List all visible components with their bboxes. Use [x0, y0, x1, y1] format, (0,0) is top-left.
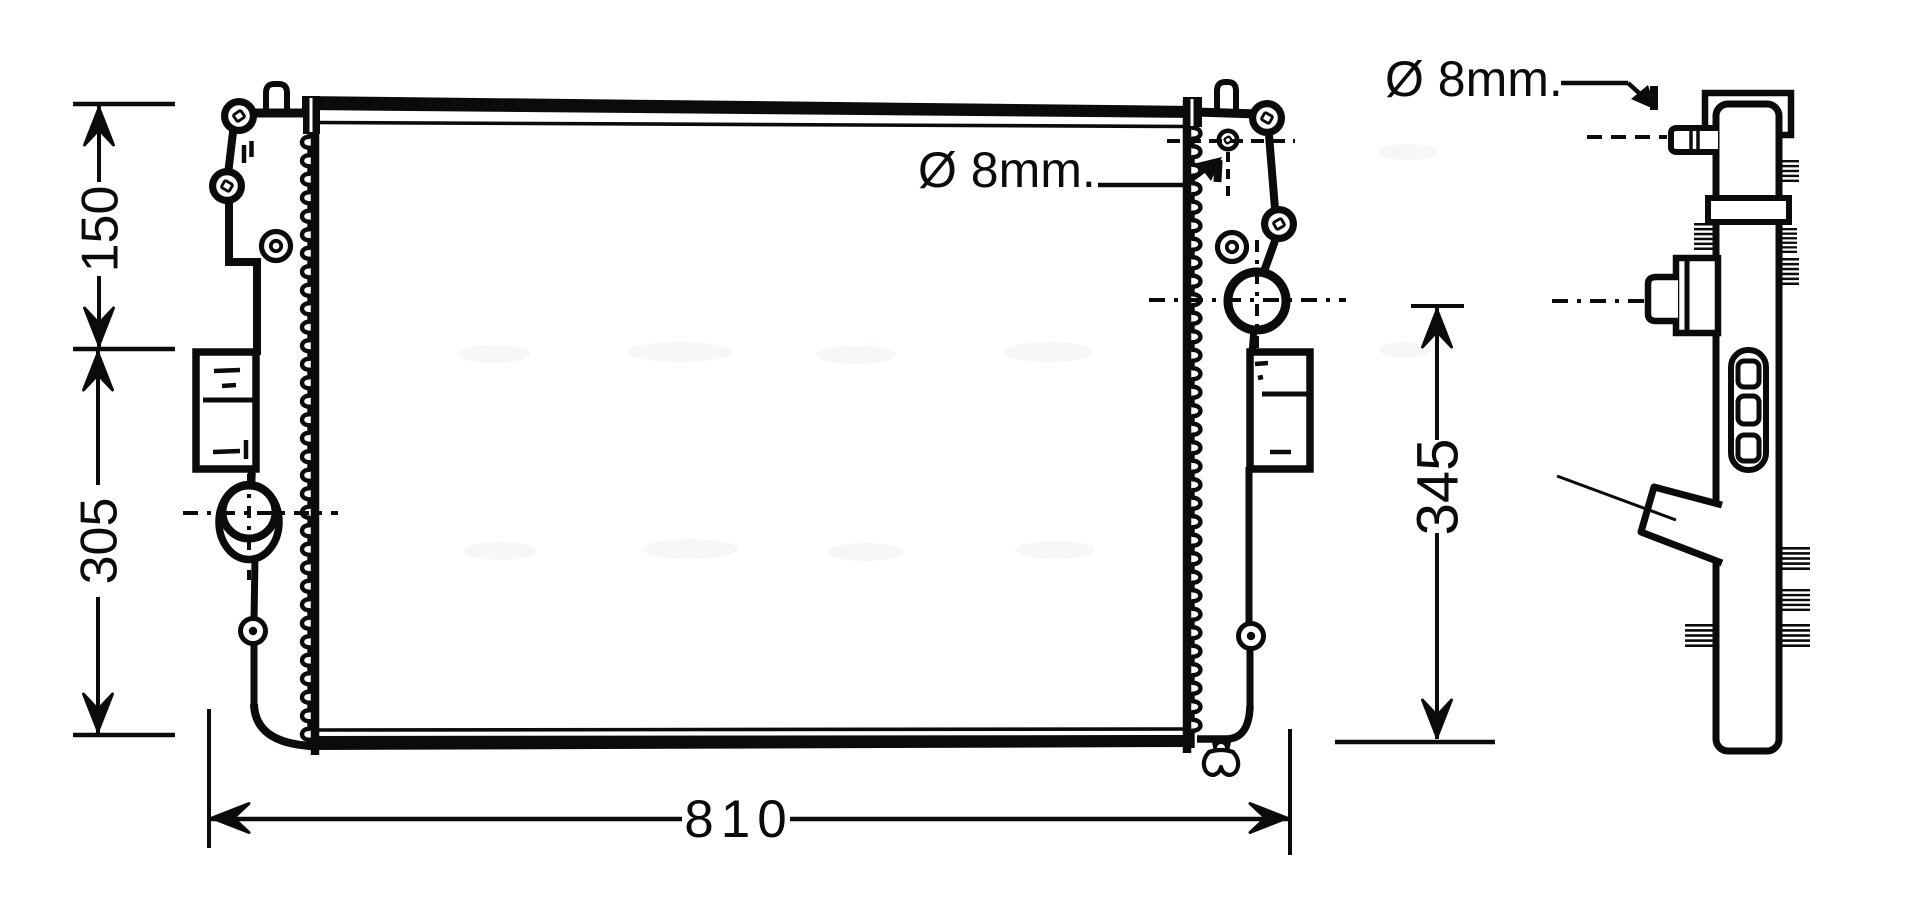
svg-text:150: 150	[71, 186, 129, 273]
svg-text:Ø 8mm.: Ø 8mm.	[918, 142, 1096, 198]
svg-text:305: 305	[70, 498, 128, 585]
svg-text:Ø 8mm.: Ø 8mm.	[1385, 51, 1563, 107]
svg-text:345: 345	[1406, 439, 1471, 536]
svg-text:810: 810	[684, 790, 793, 849]
